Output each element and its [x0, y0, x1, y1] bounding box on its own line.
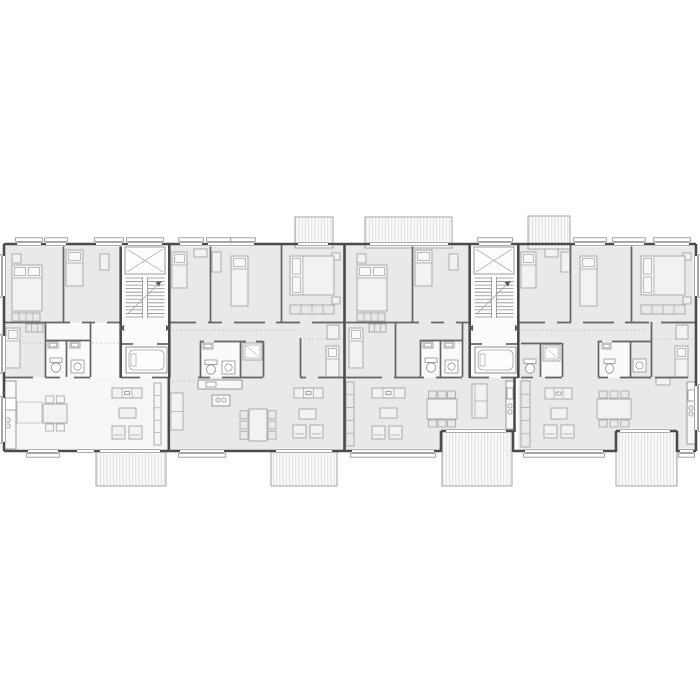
toilet-tank — [524, 359, 536, 364]
nightstand — [12, 254, 21, 263]
single-bed-pillow — [175, 255, 185, 263]
window-sill — [95, 238, 124, 242]
double-bed-pillow — [15, 268, 26, 276]
window-sill — [0, 255, 1, 298]
room-fill-unit1-living — [4, 378, 169, 452]
tv-sideboard-tv — [386, 392, 391, 395]
dresser — [194, 249, 207, 257]
armchair-pair — [561, 425, 574, 438]
window-sill — [0, 397, 1, 444]
toilet-bowl — [207, 365, 216, 374]
armchair-pair — [389, 426, 402, 439]
window-sill — [654, 238, 691, 242]
armchair-pair — [112, 426, 125, 439]
double-bed-pillow — [644, 277, 652, 293]
window-sill — [613, 238, 646, 242]
dining-table — [597, 399, 631, 419]
window-sill — [231, 238, 256, 242]
nightstand — [332, 297, 340, 304]
dining-table — [427, 399, 457, 419]
window-sill — [179, 454, 226, 458]
tv-sideboard-tv — [556, 392, 561, 395]
coffee-table — [119, 408, 136, 418]
kitchen-counter-sink — [507, 388, 513, 399]
window-sill — [179, 238, 204, 242]
single-bed-pillow — [583, 259, 595, 267]
desk — [561, 252, 570, 272]
bathtub — [126, 347, 167, 373]
desk — [100, 254, 109, 270]
dresser — [545, 249, 558, 257]
kitchen-counter-sink — [5, 398, 16, 410]
desk — [212, 252, 221, 272]
dining-table — [249, 409, 267, 441]
armchair-pair — [129, 426, 142, 439]
window-sill — [27, 454, 60, 458]
toilet-bowl — [52, 363, 61, 372]
window-sill — [679, 454, 695, 458]
washing-machine — [445, 360, 458, 373]
toilet-bowl — [526, 364, 535, 373]
window-sill — [207, 238, 234, 242]
single-bed-pillow — [69, 253, 81, 261]
balcony-bottom-4-hatch — [616, 431, 677, 486]
single-bed-pillow — [234, 259, 246, 267]
single-bed-pillow — [352, 331, 361, 339]
coffee-table — [551, 408, 567, 419]
window-sill — [45, 238, 68, 242]
balcony-bottom-2-hatch — [271, 452, 337, 486]
double-bed-pillow — [360, 268, 371, 276]
armchair-pair — [310, 425, 323, 438]
double-bed-pillow — [293, 277, 301, 293]
single-bed-pillow — [678, 349, 686, 357]
window-sill — [574, 238, 607, 242]
wardrobe — [676, 325, 688, 339]
toilet-tank — [205, 360, 217, 365]
double-bed-pillow — [374, 268, 385, 276]
window-sill — [478, 238, 513, 242]
washing-machine — [633, 359, 646, 372]
bathtub — [475, 347, 516, 373]
armchair-pair — [293, 425, 306, 438]
kitchen-counter-sink — [206, 382, 216, 387]
coffee-table — [380, 408, 397, 418]
balcony-bottom-1-hatch — [96, 452, 166, 486]
double-bed-pillow — [29, 268, 40, 276]
coffee-table — [299, 409, 316, 419]
wardrobe — [327, 325, 339, 339]
window-sill — [127, 238, 164, 242]
desk — [449, 254, 458, 270]
single-bed-pillow — [9, 331, 18, 339]
tv-sideboard-tv — [125, 392, 130, 395]
toilet-tank — [425, 358, 437, 363]
balcony-bottom-3-hatch — [442, 431, 512, 486]
double-bed-pillow — [644, 259, 652, 275]
washing-machine — [222, 361, 235, 374]
kitchen-counter — [198, 380, 242, 389]
washing-machine — [71, 360, 84, 373]
dining-table — [43, 404, 67, 423]
double-bed-pillow — [293, 259, 301, 275]
toilet-tank — [50, 358, 62, 363]
window-sill — [16, 238, 43, 242]
single-bed-pillow — [329, 349, 337, 357]
armchair-pair — [372, 426, 385, 439]
kitchen-island — [212, 395, 230, 406]
toilet-bowl — [427, 363, 436, 372]
window-sill — [0, 335, 1, 374]
window-sill — [351, 454, 436, 458]
single-bed-pillow — [524, 255, 534, 263]
floor-plan-svg — [0, 0, 700, 700]
sideboard — [656, 378, 670, 385]
single-bed-pillow — [418, 253, 430, 261]
toilet-tank — [604, 359, 615, 364]
floor-plan — [0, 0, 700, 700]
tv-sideboard-tv — [306, 392, 311, 395]
nightstand — [683, 297, 691, 304]
toilet-bowl — [606, 364, 614, 373]
window-sill — [524, 454, 605, 458]
nightstand — [357, 254, 366, 263]
armchair-pair — [544, 425, 557, 438]
